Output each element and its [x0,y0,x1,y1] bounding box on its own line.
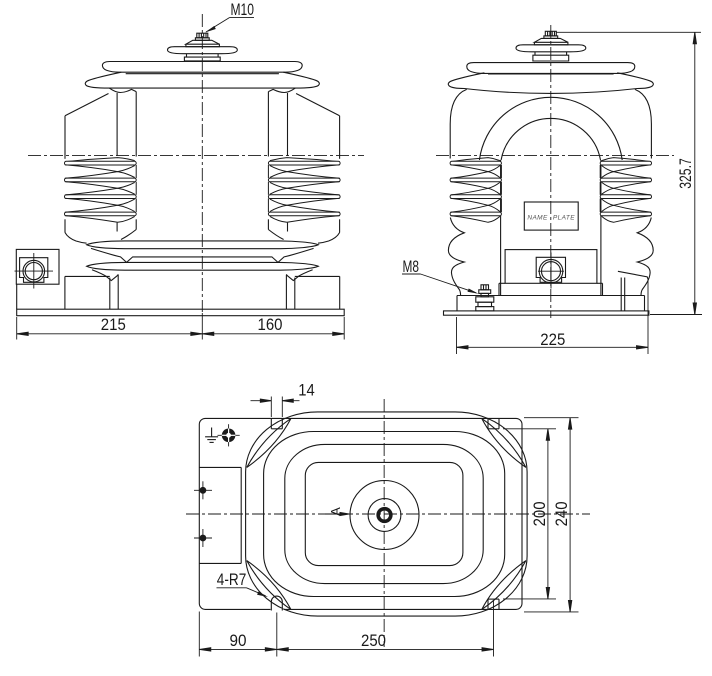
svg-text:215: 215 [101,315,126,334]
svg-text:A: A [328,507,343,516]
svg-text:200: 200 [530,501,549,526]
svg-text:M8: M8 [403,257,420,276]
svg-text:90: 90 [230,631,247,650]
svg-text:14: 14 [298,381,315,400]
svg-text:250: 250 [361,631,386,650]
svg-text:240: 240 [552,501,571,526]
svg-text:NAME PLATE: NAME PLATE [527,215,575,222]
svg-text:M10: M10 [231,0,255,19]
svg-text:325.7: 325.7 [676,158,695,189]
svg-text:4-R7: 4-R7 [217,570,247,589]
svg-text:225: 225 [540,330,565,349]
svg-text:160: 160 [258,315,283,334]
